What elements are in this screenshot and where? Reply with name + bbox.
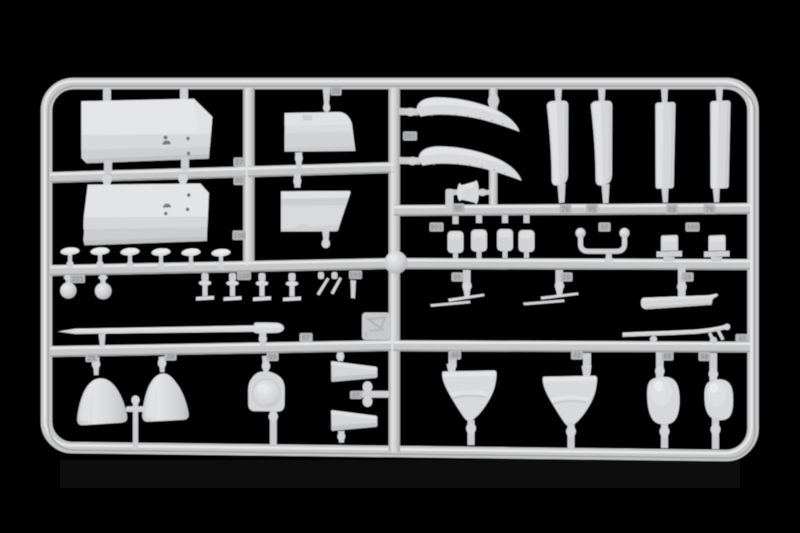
svg-text:07: 07 bbox=[352, 393, 360, 400]
svg-text:09: 09 bbox=[269, 354, 277, 361]
svg-text:90: 90 bbox=[235, 178, 243, 185]
svg-text:108: 108 bbox=[233, 233, 245, 240]
svg-text:76: 76 bbox=[706, 207, 714, 214]
svg-text:95: 95 bbox=[588, 206, 596, 213]
svg-text:29: 29 bbox=[332, 89, 340, 96]
svg-text:42: 42 bbox=[573, 353, 581, 360]
svg-text:98: 98 bbox=[701, 354, 709, 361]
svg-text:46: 46 bbox=[451, 353, 459, 360]
svg-text:38: 38 bbox=[167, 354, 175, 361]
svg-text:160: 160 bbox=[687, 225, 699, 232]
svg-text:08: 08 bbox=[668, 207, 676, 214]
svg-text:201: 201 bbox=[404, 134, 416, 141]
svg-text:105: 105 bbox=[350, 272, 362, 279]
svg-text:28: 28 bbox=[88, 355, 96, 362]
svg-text:68: 68 bbox=[664, 354, 672, 361]
svg-text:109: 109 bbox=[238, 273, 250, 280]
svg-text:201: 201 bbox=[72, 276, 84, 283]
svg-text:40: 40 bbox=[738, 336, 746, 343]
svg-text:16: 16 bbox=[684, 275, 692, 282]
svg-text:20: 20 bbox=[563, 275, 571, 282]
svg-text:85: 85 bbox=[454, 275, 462, 282]
svg-text:60: 60 bbox=[601, 225, 609, 232]
svg-text:67: 67 bbox=[302, 335, 310, 342]
svg-text:901: 901 bbox=[431, 225, 443, 232]
svg-text:76: 76 bbox=[562, 206, 570, 213]
svg-text:90: 90 bbox=[455, 206, 463, 213]
svg-text:27: 27 bbox=[235, 160, 243, 167]
